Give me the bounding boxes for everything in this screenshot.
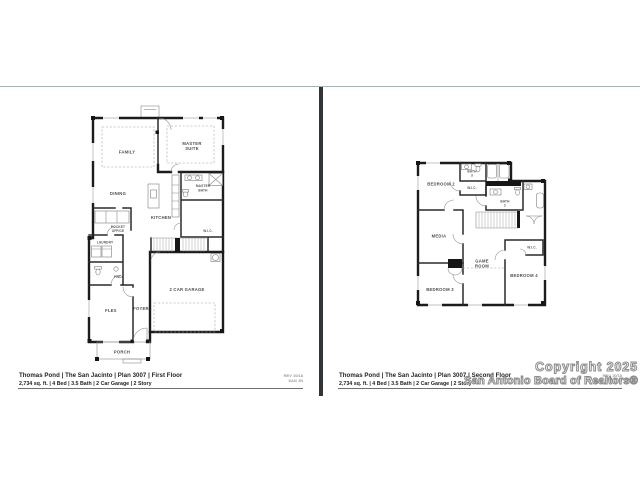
room-label-bath2-2: 2 — [504, 204, 506, 208]
first-floor-plan-drawing: FAMILY MASTER SUITE DINING KITCHEN MASTE… — [75, 95, 245, 375]
second-floor-footer-rule — [338, 388, 622, 389]
second-floor-room-labels: BEDROOM 2 BATH 3 W.I.C. BATH 2 MEDIA GAM… — [426, 170, 538, 293]
watermark-line1: Copyright 2025 — [464, 360, 638, 374]
second-floor-stairs — [476, 211, 520, 228]
room-label-laundry: LAUNDRY — [97, 241, 114, 245]
room-label-game-2: ROOM — [475, 264, 489, 269]
room-label-foyer: FOYER — [133, 306, 149, 311]
room-label-flex: FLEX — [105, 308, 117, 313]
room-label-master-bath-2: BATH — [198, 189, 208, 193]
panel-divider — [319, 87, 323, 396]
room-label-garage: 2 CAR GARAGE — [169, 287, 204, 292]
room-label-media: MEDIA — [432, 234, 447, 239]
room-label-bedroom2: BEDROOM 2 — [427, 182, 455, 187]
room-label-powder: PWDR — [114, 275, 125, 279]
first-floor-rev-line2: SAN JN — [284, 378, 303, 383]
second-floor-solid-fills — [448, 181, 521, 268]
room-label-master-suite-2: SUITE — [185, 146, 199, 151]
first-floor-walls — [89, 106, 223, 342]
first-floor-stairs — [151, 238, 208, 252]
room-label-wic: W.I.C. — [203, 229, 213, 233]
first-floor-title: Thomas Pond | The San Jacinto | Plan 300… — [19, 372, 182, 379]
copyright-watermark: Copyright 2025 San Antonio Board of Real… — [464, 360, 638, 387]
room-label-porch: PORCH — [114, 350, 130, 355]
first-floor-specs: 2,734 sq. ft. | 4 Bed | 3.5 Bath | 2 Car… — [19, 381, 182, 387]
room-label-master-bath-1: MASTER — [196, 184, 211, 188]
room-label-kitchen: KITCHEN — [151, 215, 171, 220]
room-label-bath3-2: 3 — [471, 174, 473, 178]
room-label-dining: DINING — [110, 191, 126, 196]
room-label-family: FAMILY — [119, 150, 135, 155]
first-floor-rev-block: REV 10/18 SAN JN — [284, 373, 303, 383]
first-floor-footer-rule — [18, 388, 303, 389]
mls-floorplan-image: FAMILY MASTER SUITE DINING KITCHEN MASTE… — [0, 0, 640, 480]
room-label-wic-right: W.I.C. — [527, 246, 537, 250]
room-label-bedroom4: BEDROOM 4 — [510, 273, 538, 278]
room-label-bedroom3: BEDROOM 3 — [426, 287, 454, 292]
room-label-wic-top: W.I.C. — [467, 186, 477, 190]
second-floor-plan-drawing: BEDROOM 2 BATH 3 W.I.C. BATH 2 MEDIA GAM… — [408, 148, 553, 318]
first-floor-footer: Thomas Pond | The San Jacinto | Plan 300… — [19, 372, 182, 387]
second-floor-doors — [444, 181, 542, 284]
watermark-line2: San Antonio Board of Realtors® — [464, 375, 638, 387]
room-label-pocket-office-2: OFFICE — [112, 229, 125, 233]
